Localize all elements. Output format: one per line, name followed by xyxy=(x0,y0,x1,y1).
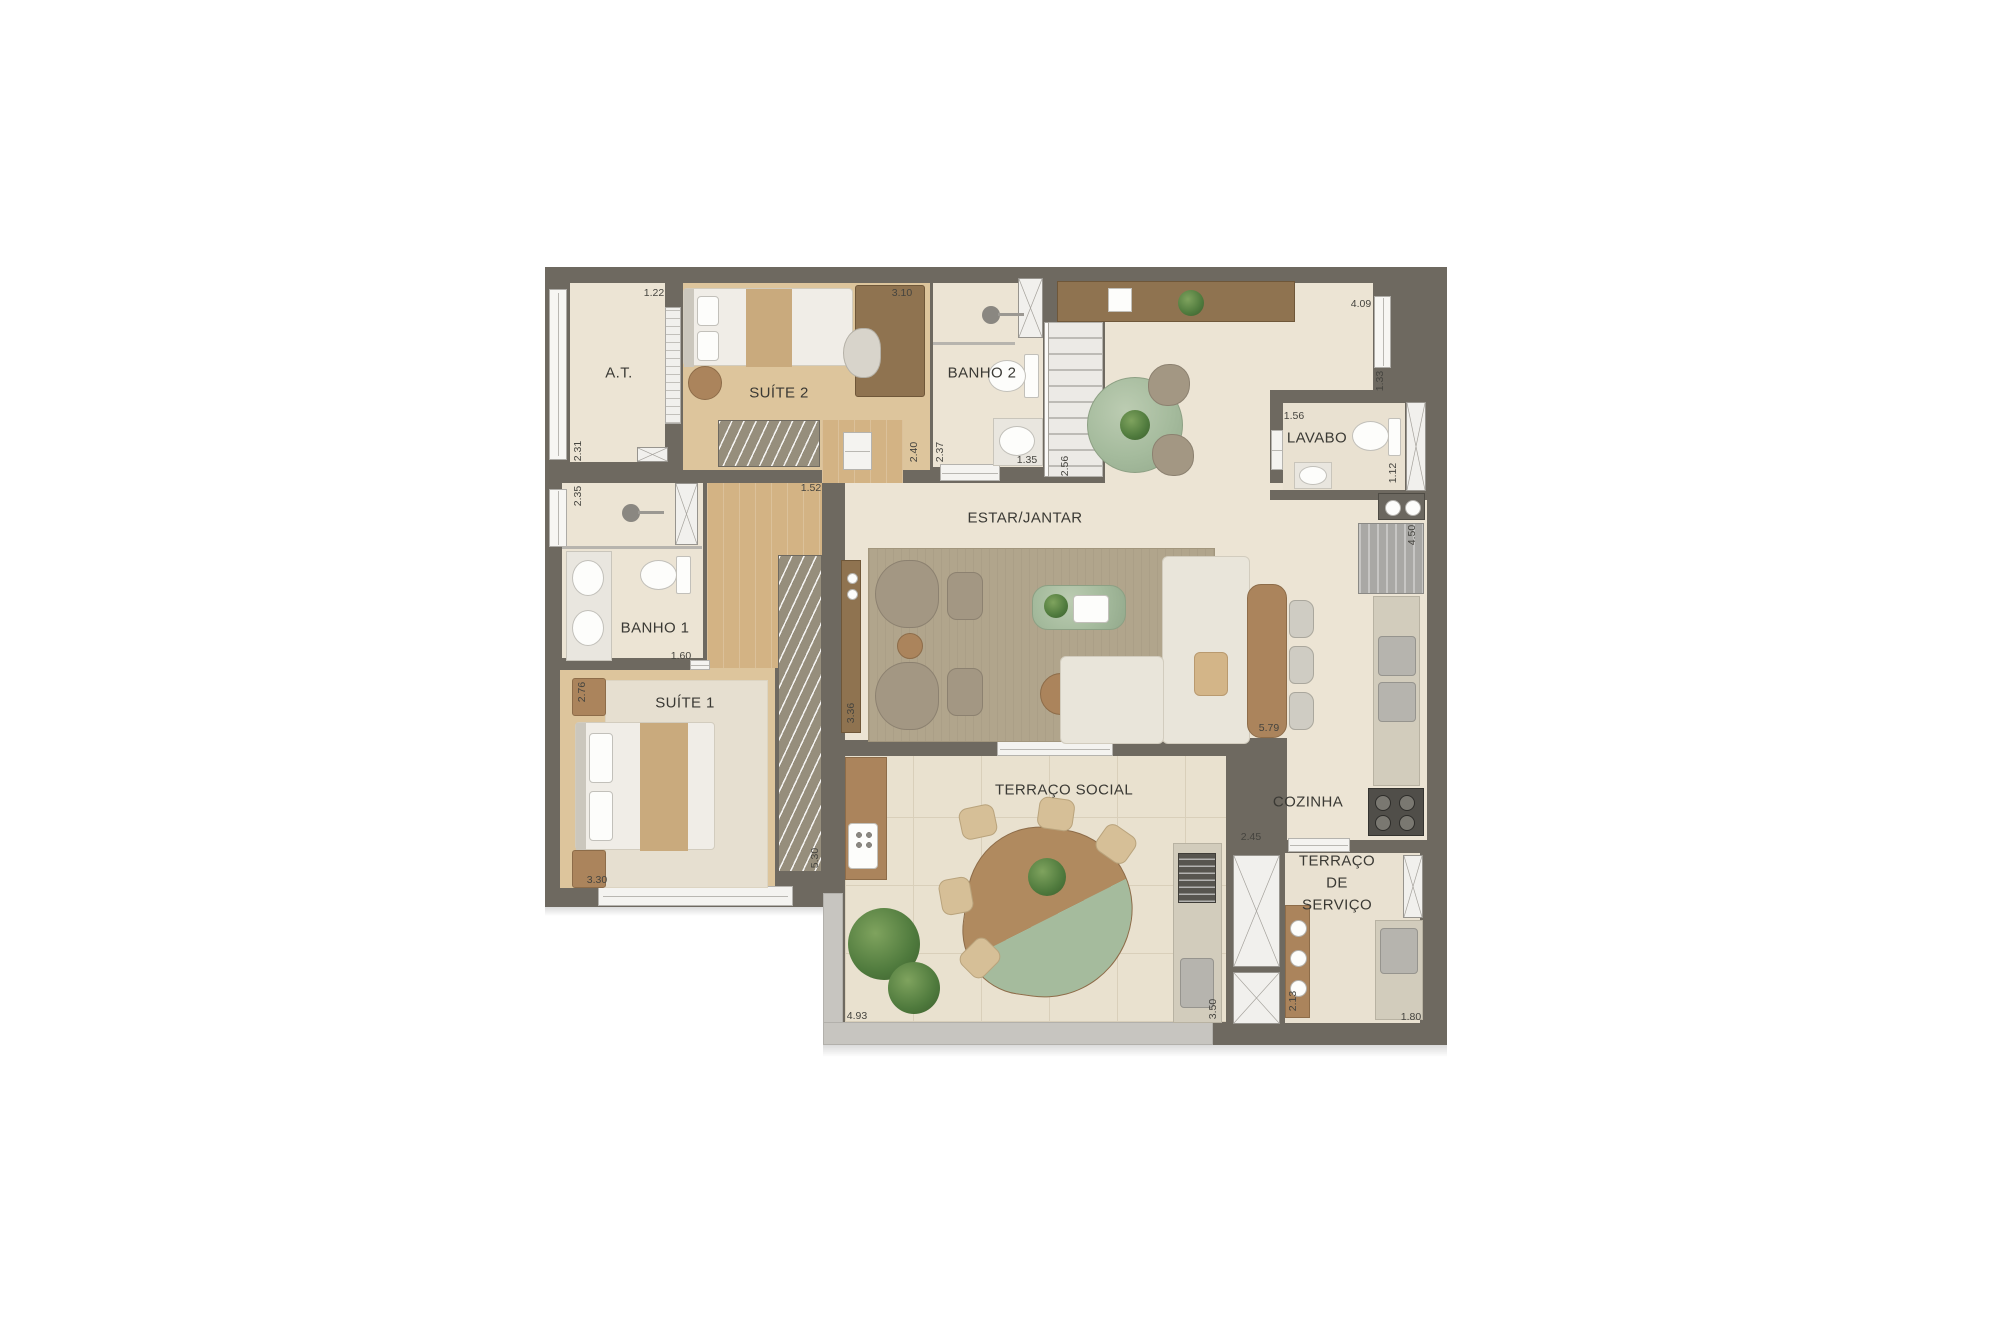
louver-at-suite2 xyxy=(665,307,681,424)
sideboard-plant-icon xyxy=(1178,290,1204,316)
dim-banho2-depth: 2.37 xyxy=(934,442,946,462)
banho1-basin-1 xyxy=(572,560,604,596)
lavabo-toilet-bowl xyxy=(1352,421,1389,451)
door-suite2 xyxy=(843,432,872,470)
banho2-shower-arm xyxy=(998,313,1024,316)
sofa-pillow xyxy=(1194,652,1228,696)
sofa-back-section xyxy=(1162,556,1250,744)
suite2-pillow-1 xyxy=(697,296,719,326)
lavabo-toilet-tank xyxy=(1388,418,1401,456)
plan-shadow xyxy=(823,1045,1447,1057)
room-label-lavabo: LAVABO xyxy=(1287,430,1347,447)
floor-plan-canvas: A.T. SUÍTE 2 BANHO 2 LAVABO ESTAR/JANTAR… xyxy=(0,0,2000,1334)
dim-suite2-width: 3.10 xyxy=(892,287,912,299)
suite2-bed xyxy=(683,288,853,366)
dim-terraco-depth: 3.50 xyxy=(1207,999,1219,1019)
wall-stub-estar-corridor xyxy=(822,545,842,740)
suite1-bed-headboard xyxy=(576,723,586,851)
coffee-table-plant-icon xyxy=(1044,594,1068,618)
suite2-blanket xyxy=(746,289,792,367)
shaft-banho2-icon xyxy=(1018,278,1043,338)
plan-shadow-left xyxy=(545,907,823,916)
door-suite1 xyxy=(690,660,710,670)
kitchen-upper-counter xyxy=(1378,493,1425,520)
dim-closet2-depth: 2.40 xyxy=(908,442,920,462)
stove xyxy=(1368,788,1424,836)
banho2-sink-basin xyxy=(999,426,1035,456)
stove-burner-2 xyxy=(1399,795,1415,811)
dim-lavabo-depth: 1.12 xyxy=(1387,463,1399,483)
stove-burner-4 xyxy=(1399,815,1415,831)
round-table-plant-icon xyxy=(1120,410,1150,440)
dim-servico-depth: 2.13 xyxy=(1287,991,1299,1011)
suite2-side-table xyxy=(688,366,722,400)
room-label-estar-jantar: ESTAR/JANTAR xyxy=(967,510,1082,527)
floor-corridor-lower xyxy=(707,555,778,668)
machine-dots xyxy=(854,830,874,850)
sliding-door-suite1 xyxy=(598,886,793,906)
banho2-toilet-tank xyxy=(1024,354,1039,398)
estar-ottoman-1 xyxy=(947,572,983,620)
room-label-banho2: BANHO 2 xyxy=(948,365,1017,382)
room-label-suite2: SUÍTE 2 xyxy=(749,385,808,402)
laundry-sink xyxy=(1380,928,1418,974)
dim-stairs-length: 2.56 xyxy=(1059,456,1071,476)
dining-chair-1 xyxy=(1289,600,1314,638)
suite1-pillow-2 xyxy=(589,791,613,841)
round-table-chair-2 xyxy=(1152,434,1194,476)
dim-suite1-depth: 2.76 xyxy=(576,682,588,702)
estar-armchair-2 xyxy=(875,662,939,730)
banho1-shower-glass xyxy=(562,546,702,549)
kitchen-sink-1 xyxy=(1378,636,1416,676)
banho1-toilet-tank xyxy=(676,556,691,594)
suite2-bed-headboard xyxy=(684,289,694,367)
round-table-chair-1 xyxy=(1148,364,1190,406)
terrace-coffee-machine xyxy=(848,823,878,869)
terrace-chair-2 xyxy=(1036,796,1076,833)
dim-lavabo-width: 1.56 xyxy=(1284,410,1304,422)
estar-sideboard xyxy=(1057,281,1295,322)
shaft-at-icon xyxy=(637,447,668,462)
room-label-terraco-social: TERRAÇO SOCIAL xyxy=(995,782,1133,799)
terrace-plant-small-icon xyxy=(888,962,940,1014)
suite1-pillow-1 xyxy=(589,733,613,783)
door-banho2 xyxy=(940,464,1000,481)
elevator-shaft-1-icon xyxy=(1233,855,1280,967)
dim-cozinha-length: 4.50 xyxy=(1406,525,1418,545)
parapet-bottom xyxy=(823,1022,1213,1045)
dining-table xyxy=(1247,584,1287,738)
suite2-desk-chair xyxy=(843,328,881,378)
bbq-grill-icon xyxy=(1178,853,1216,903)
shaft-servico-icon xyxy=(1403,855,1423,918)
estar-ottoman-2 xyxy=(947,668,983,716)
estar-armchair-1 xyxy=(875,560,939,628)
room-label-cozinha: COZINHA xyxy=(1273,794,1343,811)
elevator-shaft-2-icon xyxy=(1233,972,1280,1024)
sofa-chaise-section xyxy=(1060,656,1164,744)
servico-cabinet-knob-2 xyxy=(1290,950,1307,967)
kitchen-counter-dot-1 xyxy=(1385,500,1401,516)
shaft-lavabo-icon xyxy=(1406,402,1426,491)
kitchen-sink-2 xyxy=(1378,682,1416,722)
room-label-suite1: SUÍTE 1 xyxy=(655,695,714,712)
stove-burner-3 xyxy=(1375,815,1391,831)
dim-dining-length: 5.79 xyxy=(1259,722,1279,734)
window-banho1 xyxy=(549,489,567,547)
banho2-shower-glass xyxy=(933,342,1015,345)
staircase-rail xyxy=(1044,322,1049,477)
room-label-banho1: BANHO 1 xyxy=(621,620,690,637)
window-estar-topright xyxy=(1374,296,1391,368)
dim-banho1-width: 1.60 xyxy=(671,650,691,662)
dim-at-depth: 2.31 xyxy=(572,441,584,461)
dim-closet1-length: 5.30 xyxy=(809,848,821,868)
dim-banho1-depth: 2.35 xyxy=(572,486,584,506)
coffee-table-tray xyxy=(1073,595,1109,623)
kitchen-counter-dot-2 xyxy=(1405,500,1421,516)
room-label-terraco-servico: TERRAÇO DE SERVIÇO xyxy=(1291,850,1383,915)
dim-servico-width: 1.80 xyxy=(1401,1011,1421,1023)
closet-suite1 xyxy=(778,555,822,872)
dim-banho2-sink: 1.35 xyxy=(1017,454,1037,466)
shaft-banho1-icon xyxy=(675,483,698,545)
door-lavabo xyxy=(1271,430,1283,470)
estar-small-side-table xyxy=(897,633,923,659)
banho1-shower-arm xyxy=(638,511,664,514)
suite1-bed xyxy=(575,722,715,850)
dim-terraco-width: 4.93 xyxy=(847,1010,867,1022)
dim-estar-top-width: 4.09 xyxy=(1351,298,1371,310)
dining-chair-2 xyxy=(1289,646,1314,684)
dining-chair-3 xyxy=(1289,692,1314,730)
dim-suite1-width: 3.30 xyxy=(587,874,607,886)
suite2-pillow-2 xyxy=(697,331,719,361)
stove-burner-1 xyxy=(1375,795,1391,811)
lavabo-sink-basin xyxy=(1299,466,1327,485)
room-label-at: A.T. xyxy=(605,365,632,382)
banho1-basin-2 xyxy=(572,610,604,646)
window-at xyxy=(549,289,567,460)
dim-corridor-width: 1.52 xyxy=(801,482,821,494)
closet-suite2 xyxy=(718,420,820,467)
dim-right-window: 1.33 xyxy=(1374,371,1386,391)
terrace-chair-4 xyxy=(937,875,975,916)
tv-console-dot-2 xyxy=(847,589,858,600)
terrace-table-plant-icon xyxy=(1028,858,1066,896)
dim-at-width: 1.22 xyxy=(644,287,664,299)
dim-estar-left: 3.36 xyxy=(845,703,857,723)
dim-cozinha-width: 2.45 xyxy=(1241,831,1261,843)
estar-sideboard-appliance xyxy=(1108,288,1132,312)
tv-console-dot-1 xyxy=(847,573,858,584)
suite1-blanket xyxy=(640,723,688,851)
servico-cabinet-knob-1 xyxy=(1290,920,1307,937)
banho1-toilet-bowl xyxy=(640,560,677,590)
